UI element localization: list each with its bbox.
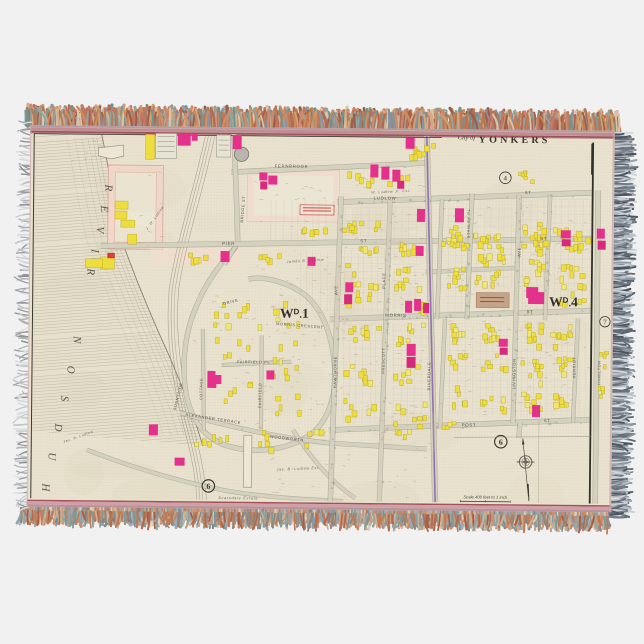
svg-text:N: N: [71, 335, 83, 344]
svg-text:6: 6: [499, 438, 503, 447]
svg-text:S: S: [58, 396, 70, 402]
svg-text:STANLEY PL: STANLEY PL: [467, 209, 471, 239]
svg-text:7: 7: [603, 318, 607, 326]
svg-text:MORRIS: MORRIS: [385, 313, 406, 318]
svg-text:POST: POST: [462, 422, 477, 427]
svg-text:O: O: [64, 366, 76, 374]
svg-text:Scale 400 feet to 1 inch: Scale 400 feet to 1 inch: [463, 494, 507, 499]
svg-text:ST: ST: [540, 236, 547, 241]
svg-text:RIVERDALE: RIVERDALE: [426, 362, 431, 391]
svg-text:FAIRFIELD: FAIRFIELD: [258, 383, 262, 409]
svg-text:ST.: ST.: [544, 418, 552, 423]
svg-text:ST: ST: [360, 238, 367, 243]
svg-text:4: 4: [504, 174, 508, 182]
svg-text:LUDLOW: LUDLOW: [374, 195, 397, 200]
svg-text:ST: ST: [525, 190, 532, 195]
svg-text:E: E: [98, 204, 110, 212]
svg-text:Scarsdale Estate: Scarsdale Estate: [218, 496, 258, 500]
svg-text:U: U: [46, 452, 58, 461]
svg-text:ST: ST: [527, 309, 534, 314]
svg-text:HERRIOT: HERRIOT: [572, 356, 576, 378]
svg-text:PIER: PIER: [222, 241, 235, 246]
svg-text:HAWTHORNE: HAWTHORNE: [332, 356, 337, 388]
svg-text:HAMILTON: HAMILTON: [597, 360, 601, 385]
svg-text:D: D: [52, 422, 64, 431]
svg-text:6: 6: [206, 482, 210, 491]
svg-text:R: R: [84, 267, 96, 275]
svg-text:FERNBROOK: FERNBROOK: [275, 164, 309, 169]
svg-text:AVE: AVE: [517, 247, 522, 257]
svg-text:LIVINGSTON: LIVINGSTON: [511, 358, 516, 389]
svg-text:PLACE: PLACE: [381, 272, 386, 289]
svg-text:AVE: AVE: [333, 285, 338, 295]
svg-text:PRESCOTT: PRESCOTT: [381, 347, 385, 373]
svg-text:R: R: [102, 184, 114, 192]
svg-text:H: H: [39, 482, 51, 492]
svg-text:COTTAGE: COTTAGE: [199, 378, 203, 400]
svg-text:FAIRFIELD PL.: FAIRFIELD PL.: [237, 360, 272, 364]
